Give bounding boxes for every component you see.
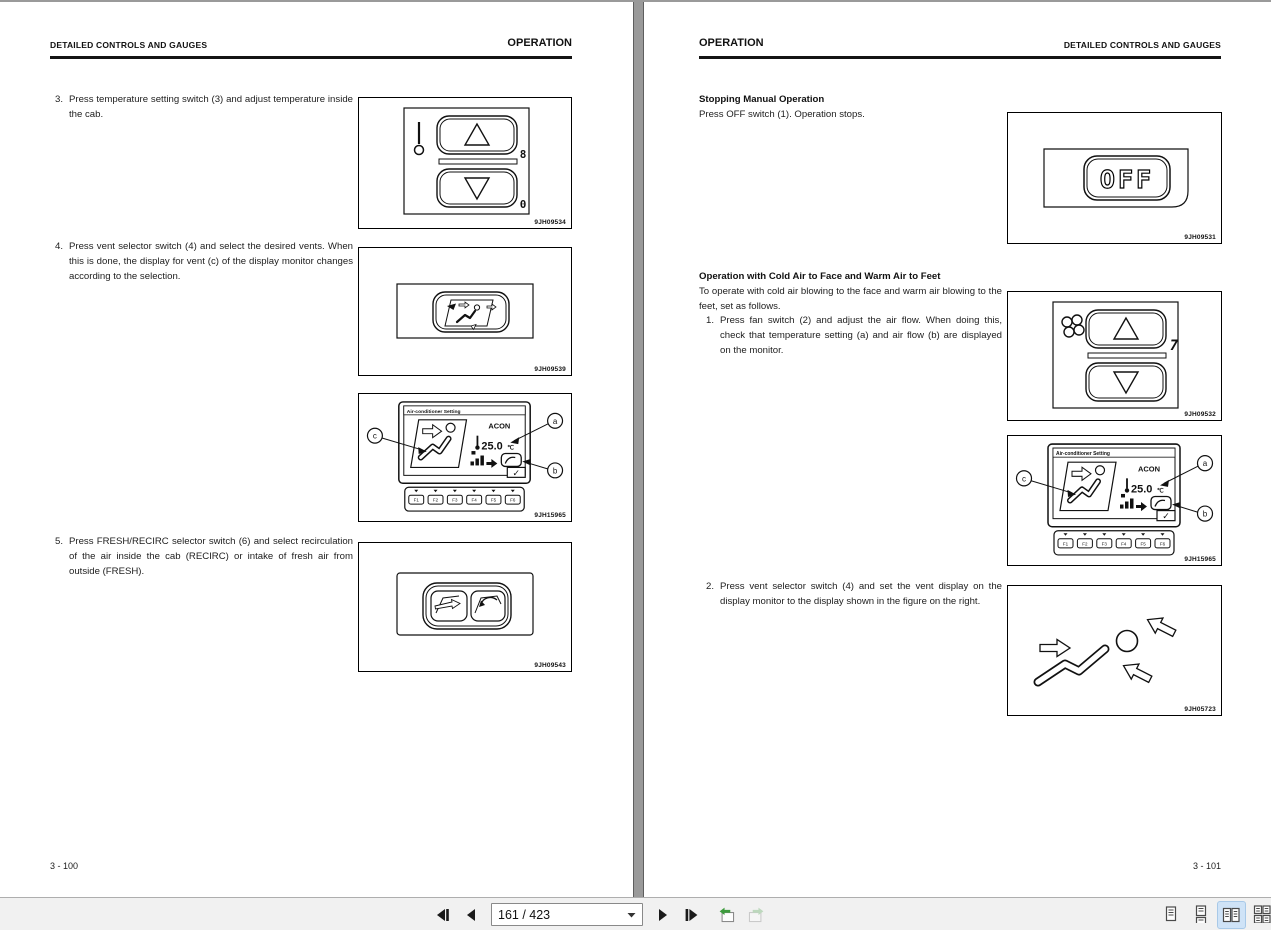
temp-min-glyph: 0 (520, 198, 527, 211)
figure-fan-switch: 7 9JH09532 (1007, 291, 1222, 421)
page-indicator: 161 / 423 (498, 908, 550, 922)
figure-code: 9JH09543 (534, 662, 566, 669)
page-navigation-group: 161 / 423 (433, 903, 765, 926)
section-body: Press OFF switch (1). Operation stops. (699, 107, 1009, 122)
page-header-chapter: OPERATION (699, 37, 764, 49)
page-number-combobox[interactable]: 161 / 423 (491, 903, 643, 926)
previous-page-icon (463, 907, 479, 923)
step-number: 1. (706, 313, 720, 358)
step-text: Press fan switch (2) and adjust the air … (720, 313, 1002, 358)
off-label: OFF (1100, 165, 1154, 194)
figure-code: 9JH05723 (1184, 706, 1216, 713)
single-page-icon (1162, 905, 1180, 923)
temp-switch-drawing: 8 0 (359, 98, 571, 228)
step-text: Press FRESH/RECIRC selector switch (6) a… (69, 534, 353, 579)
previous-view-button[interactable] (718, 905, 736, 925)
figure-code: 9JH09534 (534, 219, 566, 226)
figure-vent-display: 9JH05723 (1007, 585, 1222, 716)
last-page-button[interactable] (683, 905, 701, 925)
next-page-button[interactable] (654, 905, 672, 925)
two-page-view-icon (1222, 906, 1241, 924)
off-switch-drawing: OFF (1008, 113, 1221, 243)
page-header-section: DETAILED CONTROLS AND GAUGES (50, 40, 207, 50)
step-number: 3. (55, 92, 69, 122)
temp-max-glyph: 8 (520, 148, 527, 161)
step-text: Press temperature setting switch (3) and… (69, 92, 353, 122)
figure-monitor: 9JH15965 (358, 393, 572, 522)
page-header-chapter: OPERATION (507, 37, 572, 49)
single-page-view-button[interactable] (1157, 901, 1184, 927)
figure-fresh-recirc-switch: 9JH09543 (358, 542, 572, 672)
step-item: 4. Press vent selector switch (4) and se… (55, 239, 353, 284)
page-number: 3 - 100 (50, 861, 78, 871)
two-page-continuous-view-button[interactable] (1249, 901, 1271, 927)
dropdown-caret-icon (627, 912, 636, 918)
figure-code: 9JH09532 (1184, 411, 1216, 418)
next-view-button[interactable] (747, 905, 765, 925)
step-text: Press vent selector switch (4) and selec… (69, 239, 353, 284)
two-page-view-button[interactable] (1217, 901, 1246, 929)
figure-monitor: 9JH15965 (1007, 435, 1222, 566)
fan-level-glyph: 7 (1170, 338, 1179, 354)
figure-code: 9JH09539 (534, 366, 566, 373)
step-number: 2. (706, 579, 720, 609)
step-item: 5. Press FRESH/RECIRC selector switch (6… (55, 534, 353, 579)
figure-off-switch: OFF 9JH09531 (1007, 112, 1222, 244)
manual-page-right: OPERATION DETAILED CONTROLS AND GAUGES S… (643, 2, 1271, 897)
previous-view-icon (718, 905, 736, 925)
figure-code: 9JH15965 (534, 512, 566, 519)
step-number: 5. (55, 534, 69, 579)
view-mode-group (1157, 901, 1271, 929)
seated-person-icon (1038, 631, 1138, 683)
fan-switch-drawing: 7 (1008, 292, 1221, 420)
step-item: 2. Press vent selector switch (4) and se… (706, 579, 1002, 609)
figure-vent-switch: 9JH09539 (358, 247, 572, 376)
step-text: Press vent selector switch (4) and set t… (720, 579, 1002, 609)
header-rule (50, 56, 572, 59)
pdf-viewer-window: Air-conditioner Setting ACON (0, 0, 1271, 930)
page-header-section: DETAILED CONTROLS AND GAUGES (1064, 40, 1221, 50)
continuous-view-icon (1192, 905, 1210, 923)
figure-temp-switch: 8 0 9JH09534 (358, 97, 572, 229)
first-page-button[interactable] (433, 905, 451, 925)
two-page-continuous-icon (1253, 905, 1271, 923)
section-heading: Stopping Manual Operation (699, 94, 824, 105)
manual-page-left: DETAILED CONTROLS AND GAUGES OPERATION 3… (0, 2, 634, 897)
step-number: 4. (55, 239, 69, 284)
figure-code: 9JH09531 (1184, 234, 1216, 241)
first-page-icon (434, 907, 451, 923)
continuous-view-button[interactable] (1187, 901, 1214, 927)
last-page-icon (684, 907, 701, 923)
fresh-recirc-drawing (359, 543, 571, 671)
next-page-icon (655, 907, 671, 923)
step-item: 1. Press fan switch (2) and adjust the a… (706, 313, 1002, 358)
header-rule (699, 56, 1221, 59)
step-item: 3. Press temperature setting switch (3) … (55, 92, 353, 122)
page-number: 3 - 101 (1193, 861, 1221, 871)
section-heading: Operation with Cold Air to Face and Warm… (699, 271, 940, 282)
viewer-toolbar: 161 / 423 (0, 897, 1271, 930)
section-intro: To operate with cold air blowing to the … (699, 284, 1002, 314)
vent-display-drawing (1008, 586, 1221, 715)
previous-page-button[interactable] (462, 905, 480, 925)
vent-switch-drawing (359, 248, 571, 375)
next-view-icon (747, 905, 765, 925)
figure-code: 9JH15965 (1184, 556, 1216, 563)
